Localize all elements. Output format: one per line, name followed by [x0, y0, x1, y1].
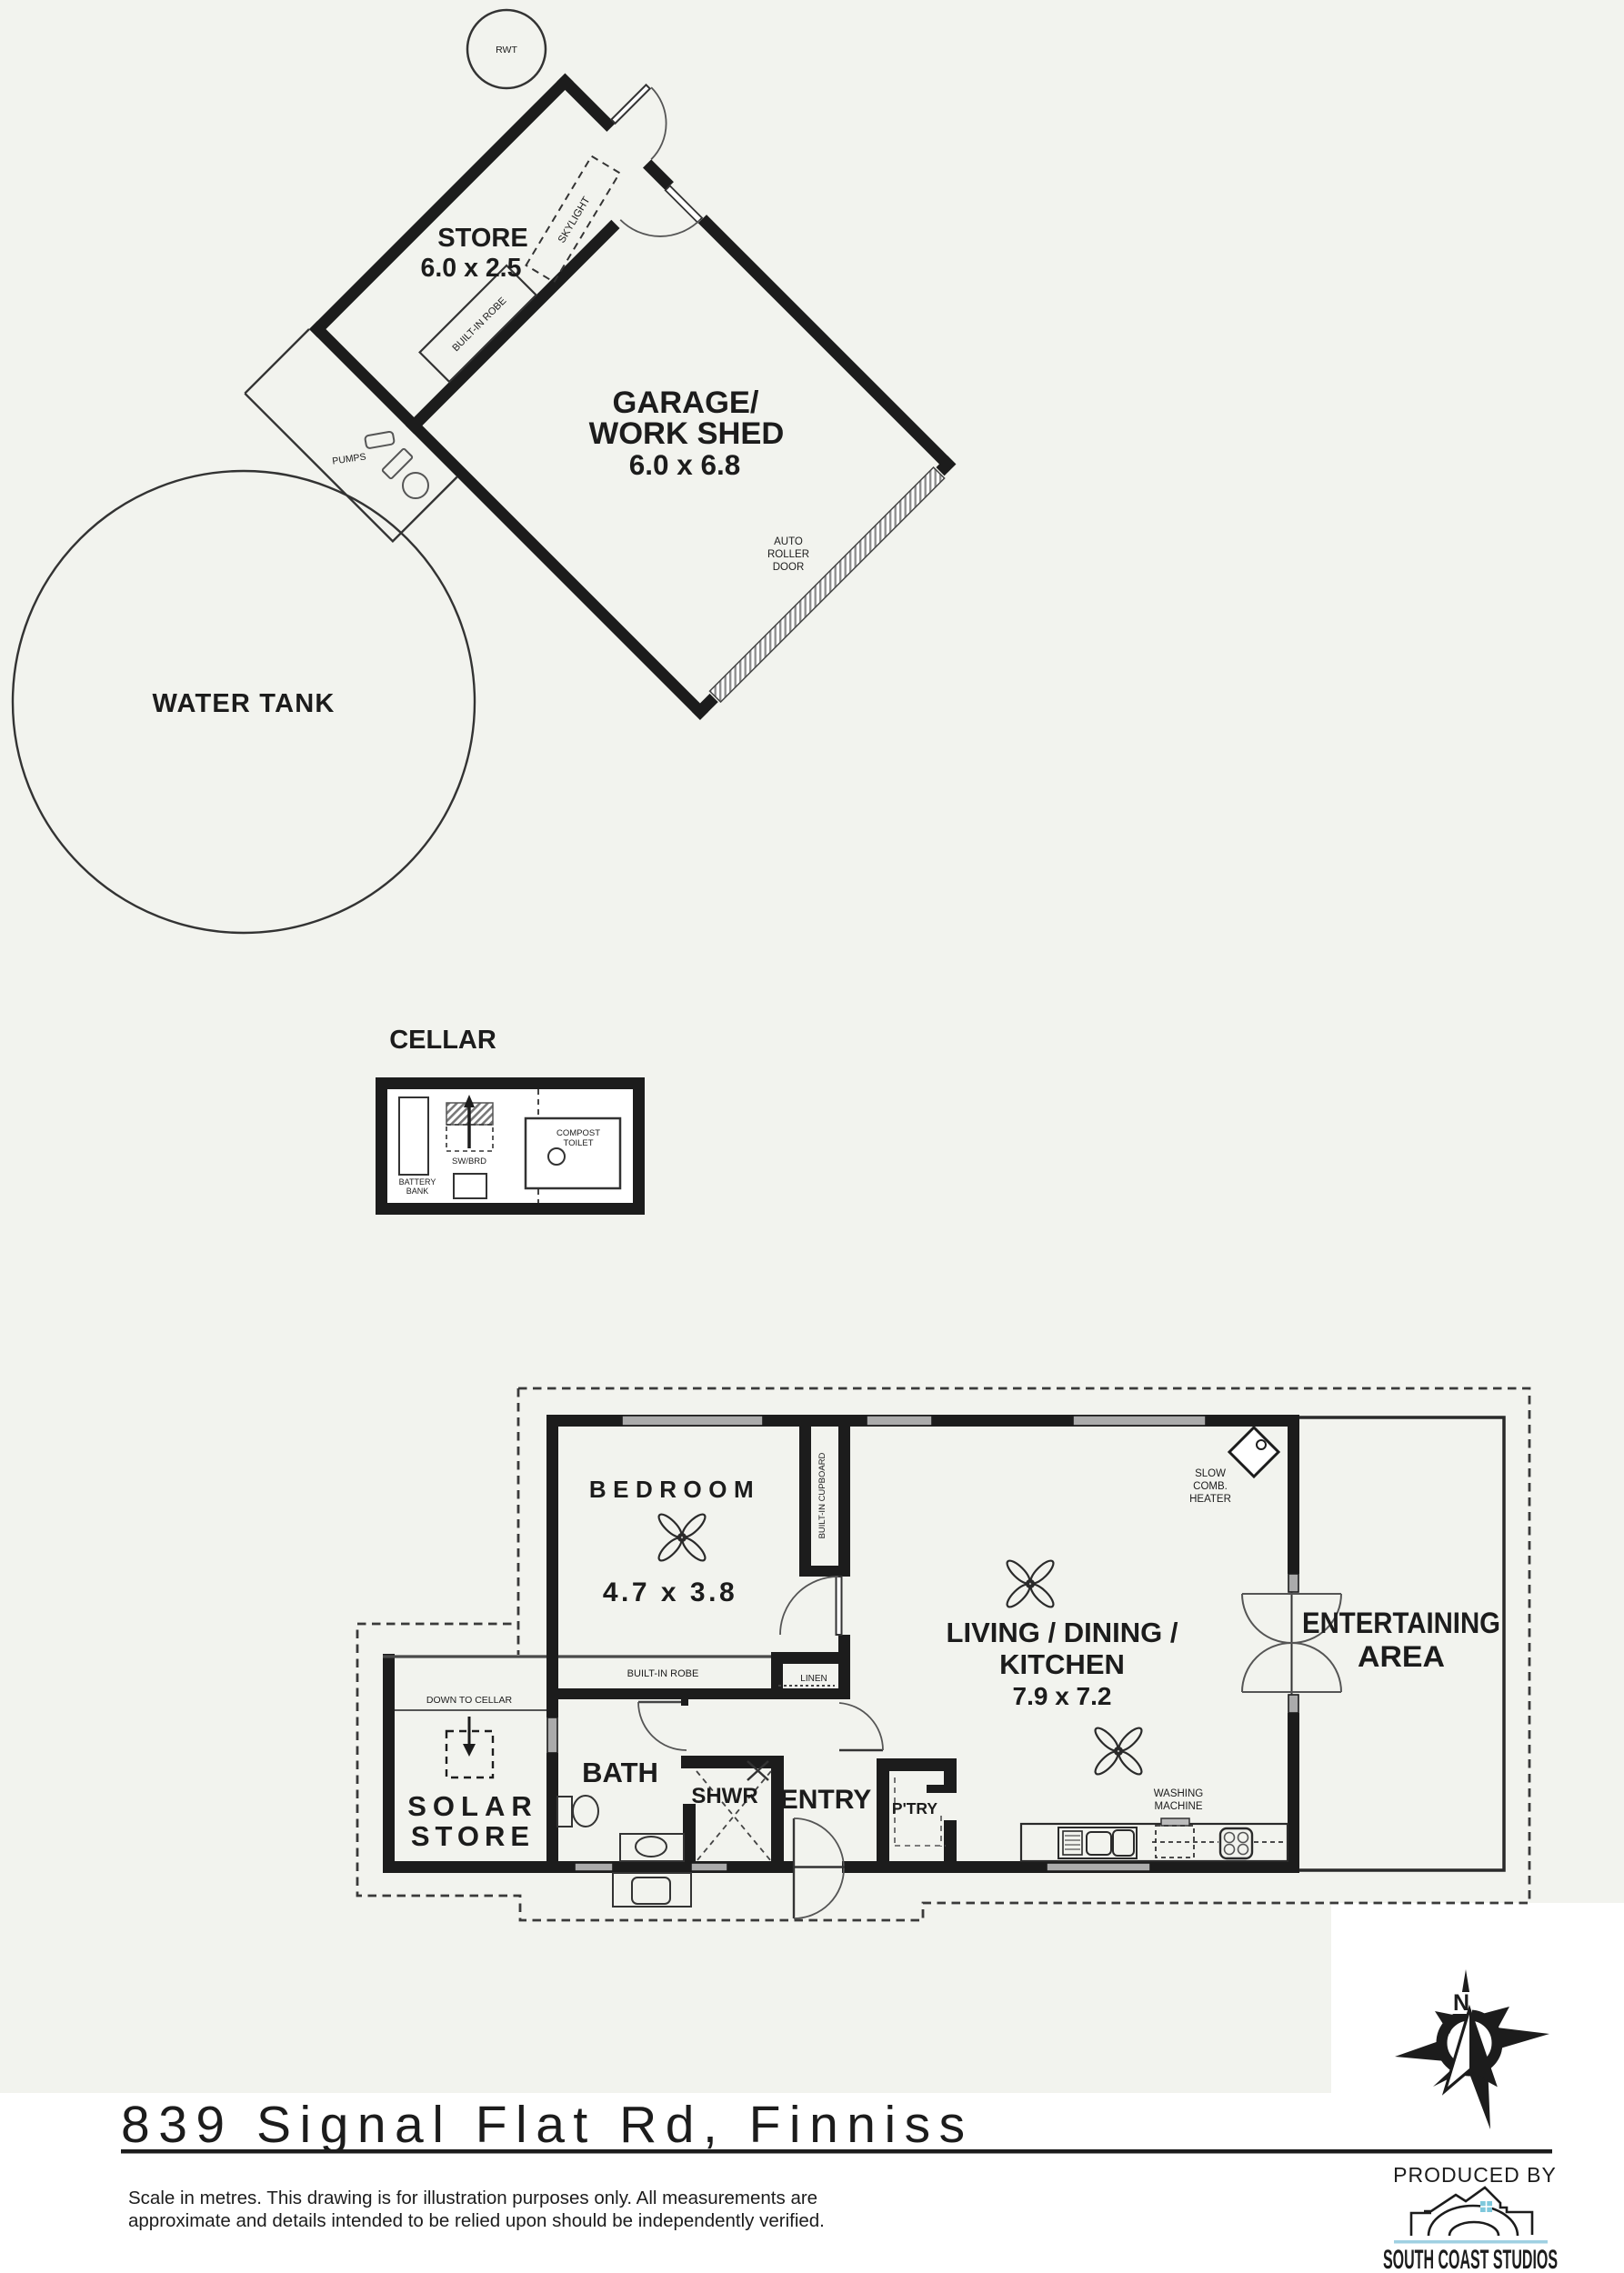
svg-text:CELLAR: CELLAR: [389, 1026, 496, 1055]
svg-text:6.0 x 2.5: 6.0 x 2.5: [421, 254, 522, 283]
svg-text:SHWR: SHWR: [691, 1784, 757, 1808]
svg-text:GARAGE/: GARAGE/: [612, 386, 758, 420]
svg-text:AUTO: AUTO: [774, 536, 803, 547]
svg-text:DOWN TO CELLAR: DOWN TO CELLAR: [426, 1695, 513, 1706]
svg-text:PRODUCED BY: PRODUCED BY: [1393, 2163, 1557, 2187]
svg-text:P'TRY: P'TRY: [892, 1799, 938, 1817]
svg-text:WORK SHED: WORK SHED: [589, 416, 785, 451]
svg-text:7.9 x 7.2: 7.9 x 7.2: [1013, 1682, 1112, 1710]
svg-text:KITCHEN: KITCHEN: [999, 1648, 1125, 1680]
svg-text:ROLLER: ROLLER: [767, 549, 809, 560]
svg-text:AREA: AREA: [1358, 1640, 1445, 1673]
svg-text:SOLAR: SOLAR: [407, 1790, 538, 1822]
svg-text:COMB.: COMB.: [1193, 1481, 1228, 1492]
svg-text:STORE: STORE: [437, 224, 527, 253]
svg-text:BANK: BANK: [406, 1187, 429, 1196]
svg-text:COMPOST: COMPOST: [556, 1128, 600, 1138]
svg-text:LIVING / DINING /: LIVING / DINING /: [947, 1617, 1178, 1648]
svg-text:SW/BRD: SW/BRD: [452, 1157, 486, 1167]
svg-text:STORE: STORE: [411, 1820, 535, 1852]
svg-text:Scale in metres. This drawing: Scale in metres. This drawing is for ill…: [128, 2188, 817, 2208]
svg-text:BATH: BATH: [582, 1757, 658, 1788]
svg-text:LINEN: LINEN: [800, 1674, 827, 1684]
svg-text:approximate and details intend: approximate and details intended to be r…: [128, 2210, 825, 2231]
svg-text:4.7 x 3.8: 4.7 x 3.8: [603, 1577, 737, 1607]
svg-text:BUILT-IN ROBE: BUILT-IN ROBE: [627, 1668, 699, 1679]
svg-text:RWT: RWT: [496, 45, 517, 55]
svg-text:SLOW: SLOW: [1195, 1468, 1226, 1479]
svg-text:N: N: [1453, 1990, 1469, 2016]
svg-text:TOILET: TOILET: [563, 1138, 593, 1148]
svg-text:BEDROOM: BEDROOM: [589, 1476, 760, 1503]
svg-text:WATER TANK: WATER TANK: [152, 689, 335, 718]
svg-text:ENTRY: ENTRY: [780, 1785, 872, 1815]
svg-text:BATTERY: BATTERY: [399, 1177, 436, 1187]
svg-text:WASHING: WASHING: [1154, 1788, 1204, 1799]
svg-text:MACHINE: MACHINE: [1154, 1801, 1202, 1812]
svg-text:DOOR: DOOR: [773, 562, 805, 573]
svg-text:HEATER: HEATER: [1189, 1494, 1231, 1505]
svg-text:BUILT-IN CUPBOARD: BUILT-IN CUPBOARD: [817, 1452, 827, 1538]
svg-text:6.0 x 6.8: 6.0 x 6.8: [629, 448, 741, 481]
svg-text:839 Signal Flat Rd, Finniss: 839 Signal Flat Rd, Finniss: [121, 2096, 974, 2154]
svg-text:SOUTH COAST STUDIOS: SOUTH COAST STUDIOS: [1383, 2245, 1558, 2273]
svg-text:ENTERTAINING: ENTERTAINING: [1302, 1607, 1500, 1639]
